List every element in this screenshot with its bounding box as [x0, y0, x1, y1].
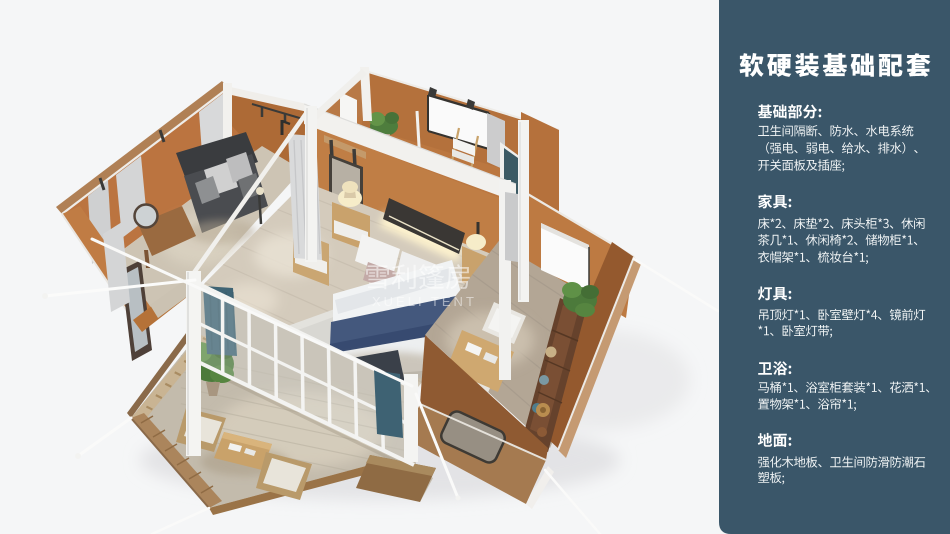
svg-text:XUELI TENT: XUELI TENT — [372, 294, 477, 309]
